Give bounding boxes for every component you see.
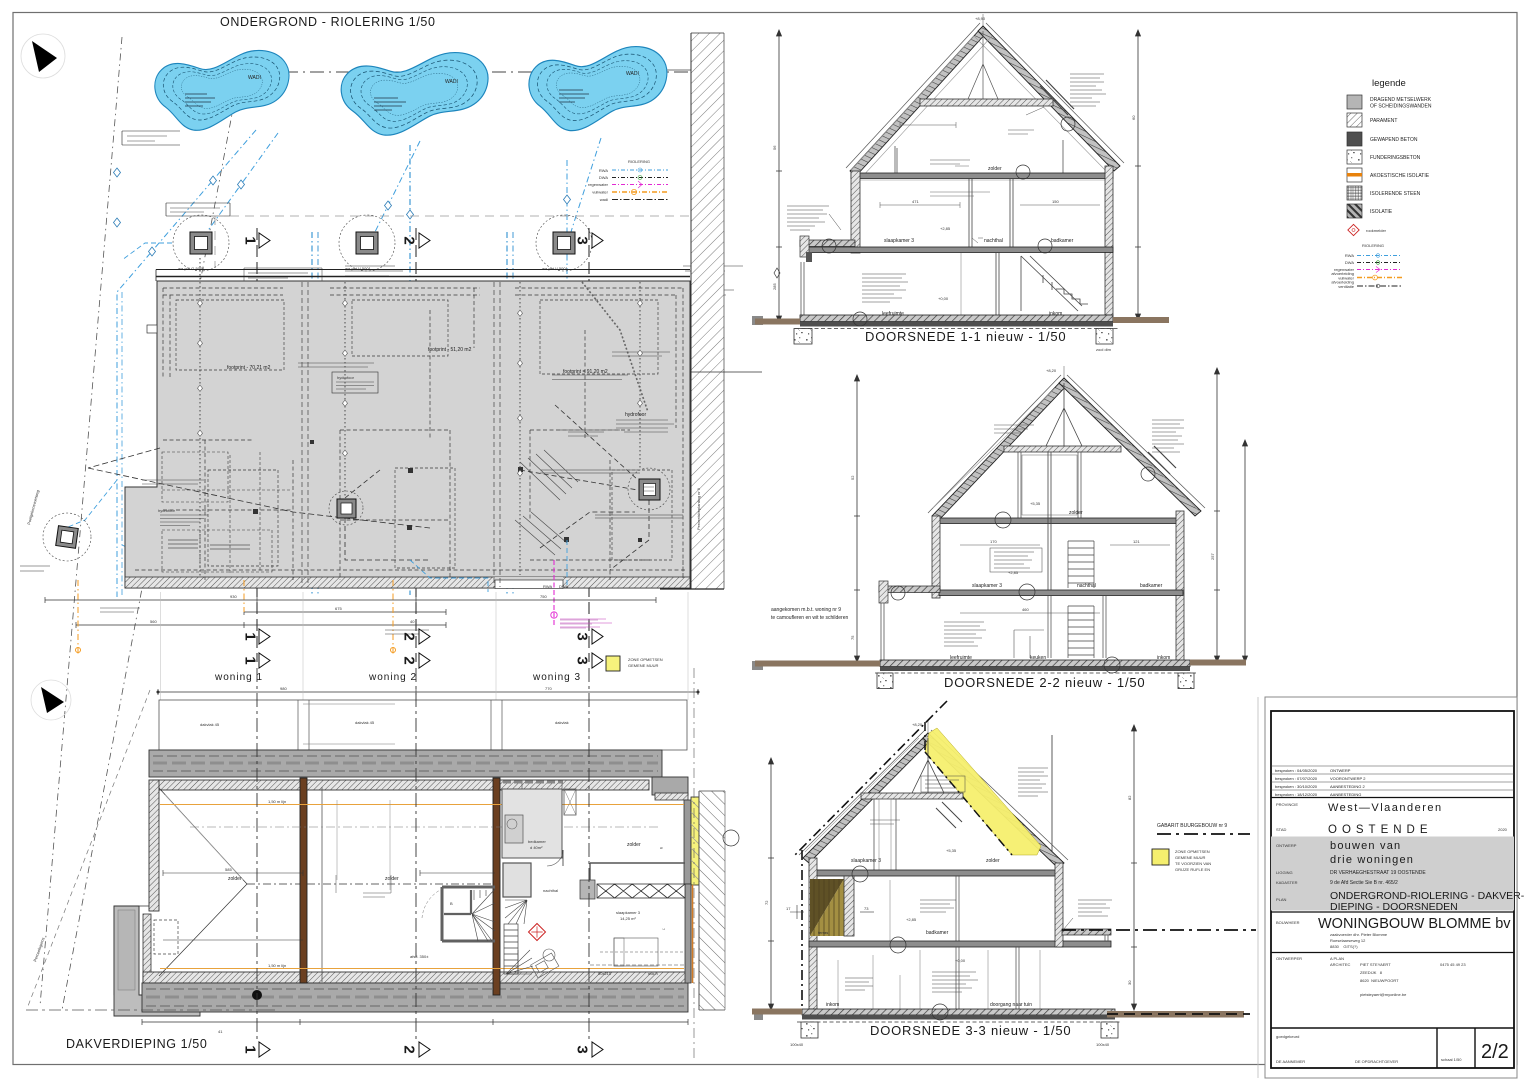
svg-text:B: B (450, 901, 453, 906)
svg-text:zolder: zolder (988, 166, 1002, 172)
svg-text:A PLAN: A PLAN (1330, 956, 1344, 961)
svg-text:ONTWERP: ONTWERP (1276, 843, 1297, 848)
svg-text:ventilatie: ventilatie (1338, 284, 1355, 289)
svg-text:72: 72 (764, 900, 769, 905)
svg-text:slaapkamer 3: slaapkamer 3 (884, 238, 914, 244)
svg-text:OOSTENDE: OOSTENDE (1328, 824, 1433, 836)
svg-text:bedkamer: bedkamer (528, 839, 546, 844)
svg-text:zolder: zolder (627, 842, 641, 848)
svg-text:1: 1 (242, 236, 259, 244)
svg-text:zolder: zolder (228, 876, 242, 882)
svg-text:Perceelsbeplanting nr 9: Perceelsbeplanting nr 9 (696, 487, 701, 530)
svg-text:FUNDERINGSBETON: FUNDERINGSBETON (1370, 155, 1421, 161)
svg-text:60: 60 (1131, 115, 1136, 120)
svg-text:hydrofoor: hydrofoor (337, 375, 355, 380)
svg-text:drie woningen: drie woningen (1330, 854, 1414, 866)
svg-text:2: 2 (401, 1045, 418, 1053)
svg-text:PIET STEYAERT: PIET STEYAERT (1360, 962, 1391, 967)
svg-text:AANBESTEDING 2: AANBESTEDING 2 (1330, 784, 1365, 789)
svg-text:wa-put V-5001: wa-put V-5001 (345, 266, 372, 271)
svg-text:hydrofoor: hydrofoor (625, 412, 646, 418)
svg-text:DAKVERDIEPING 1/50: DAKVERDIEPING 1/50 (66, 1037, 207, 1051)
svg-text:3: 3 (574, 656, 591, 664)
svg-text:+5,35: +5,35 (946, 848, 957, 853)
svg-text:dakvlak 45: dakvlak 45 (355, 720, 375, 725)
svg-text:STAD: STAD (1276, 827, 1286, 832)
svg-text:afstl. 350±: afstl. 350± (410, 954, 429, 959)
svg-text:+5,35: +5,35 (1030, 501, 1041, 506)
svg-text:40: 40 (410, 619, 415, 624)
svg-text:nok h: nok h (648, 971, 658, 976)
svg-text:TE VOORZIEN VAN: TE VOORZIEN VAN (1175, 861, 1211, 866)
svg-text:zool dim: zool dim (1096, 347, 1112, 352)
svg-text:GABARIT BUURGEBOUW nr 9: GABARIT BUURGEBOUW nr 9 (1157, 823, 1227, 829)
svg-text:legende: legende (1372, 78, 1406, 89)
svg-text:1,50 m lijn: 1,50 m lijn (268, 963, 286, 968)
svg-text:DR VERHAEGHESTRAAT 19 OOSTEN: DR VERHAEGHESTRAAT 19 OOSTENDE (1330, 870, 1426, 876)
svg-text:woning 1: woning 1 (214, 672, 263, 683)
svg-text:besproken : 07/07/2020: besproken : 07/07/2020 (1275, 776, 1318, 781)
svg-text:BOUWHEER: BOUWHEER (1276, 920, 1300, 925)
svg-text:+2,85: +2,85 (906, 917, 917, 922)
svg-text:8620 NIEUWPOORT: 8620 NIEUWPOORT (1360, 978, 1399, 983)
svg-text:GRIJZE RUFLE EN: GRIJZE RUFLE EN (1175, 867, 1210, 872)
svg-text:DE OPDRACHTGEVER: DE OPDRACHTGEVER (1355, 1059, 1398, 1064)
svg-text:ISOLERENDE STEEN: ISOLERENDE STEEN (1370, 191, 1421, 197)
svg-text:RWA: RWA (599, 168, 608, 173)
svg-text:inkom: inkom (826, 1002, 839, 1008)
svg-text:zolder: zolder (1069, 510, 1083, 516)
svg-text:VOORONTWERP 2: VOORONTWERP 2 (1330, 776, 1366, 781)
svg-text:257: 257 (1210, 553, 1215, 560)
svg-text:ARCHITEC: ARCHITEC (1330, 962, 1351, 967)
svg-text:82: 82 (1127, 795, 1132, 800)
svg-text:slaapkamer 3: slaapkamer 3 (851, 858, 881, 864)
svg-text:dakvlak 45: dakvlak 45 (200, 722, 220, 727)
svg-text:2: 2 (401, 656, 418, 664)
svg-text:wa-put V-5001: wa-put V-5001 (542, 266, 569, 271)
svg-text:zolder: zolder (986, 858, 1000, 864)
svg-text:ZEEDIJK 8: ZEEDIJK 8 (1360, 970, 1383, 975)
svg-text:DWA: DWA (1345, 260, 1355, 265)
svg-text:9 de Afd Sectie Sie B nr. 4: 9 de Afd Sectie Sie B nr. 465/2 (1330, 880, 1398, 886)
svg-text:bouwen van: bouwen van (1330, 840, 1401, 852)
svg-text:750: 750 (540, 594, 547, 599)
svg-text:woning 3: woning 3 (532, 672, 581, 683)
svg-text:ONTWERPER: ONTWERPER (1276, 956, 1302, 961)
svg-text:DRAGEND METSELWERK: DRAGEND METSELWERK (1370, 97, 1432, 103)
svg-text:121: 121 (1133, 539, 1140, 544)
svg-text:460: 460 (1022, 607, 1029, 612)
svg-text:nachthal: nachthal (543, 888, 558, 893)
svg-text:woning 2: woning 2 (368, 672, 417, 683)
svg-text:wa-put G-5001: wa-put G-5001 (178, 266, 205, 271)
svg-text:RWA: RWA (543, 584, 552, 589)
svg-text:90x210: 90x210 (598, 971, 612, 976)
svg-text:3: 3 (574, 1045, 591, 1053)
svg-text:285: 285 (772, 283, 777, 290)
svg-text:KADASTER: KADASTER (1276, 880, 1298, 885)
svg-text:ONDERGROND - RIOLERING 1/50: ONDERGROND - RIOLERING 1/50 (220, 15, 436, 29)
svg-text:1: 1 (242, 656, 259, 664)
svg-text:+0,00: +0,00 (955, 958, 966, 963)
svg-text:2020: 2020 (1498, 827, 1508, 832)
svg-text:ZONE OPMETSEN: ZONE OPMETSEN (1175, 849, 1210, 854)
svg-text:0475 45 49 23: 0475 45 49 23 (1440, 962, 1466, 967)
svg-text:+8,20: +8,20 (1046, 368, 1057, 373)
svg-text:Roeselaarseweg 12: Roeselaarseweg 12 (1330, 938, 1366, 943)
svg-text:badkamer: badkamer (1140, 583, 1163, 589)
svg-text:2/2: 2/2 (1481, 1041, 1509, 1063)
svg-text:PLAN: PLAN (1276, 897, 1287, 902)
svg-text:te camoufleren en wit te schil: te camoufleren en wit te schilderen (771, 615, 848, 621)
svg-text:3: 3 (574, 632, 591, 640)
svg-text:770: 770 (545, 686, 552, 691)
svg-text:DOORSNEDE 2-2 nieuw - 1/50: DOORSNEDE 2-2 nieuw - 1/50 (944, 675, 1145, 690)
svg-text:100x40: 100x40 (1096, 1042, 1110, 1047)
svg-text:3: 3 (574, 236, 591, 244)
svg-text:nachthal: nachthal (1077, 583, 1096, 589)
svg-text:14,25 m²: 14,25 m² (620, 916, 636, 921)
svg-text:1,50 m lijn: 1,50 m lijn (268, 799, 286, 804)
svg-text:585: 585 (225, 867, 232, 872)
svg-text:170: 170 (990, 539, 997, 544)
svg-text:30: 30 (1127, 980, 1132, 985)
svg-text:PARAMENT: PARAMENT (1370, 118, 1397, 124)
svg-text:dakvlak: dakvlak (555, 720, 569, 725)
svg-text:footprint - 70,21 m2: footprint - 70,21 m2 (227, 365, 271, 371)
svg-text:West—Vlaanderen: West—Vlaanderen (1328, 802, 1443, 814)
svg-text:DOORSNEDE 1-1 nieuw - 1/50: DOORSNEDE 1-1 nieuw - 1/50 (865, 329, 1066, 344)
svg-text:WADI: WADI (445, 79, 458, 85)
svg-text:8830 GITS(?): 8830 GITS(?) (1330, 944, 1358, 949)
svg-text:GEMENE MUUR: GEMENE MUUR (628, 663, 659, 668)
svg-text:980: 980 (280, 686, 287, 691)
svg-text:terras: terras (818, 930, 828, 935)
svg-text:41: 41 (218, 1029, 223, 1034)
svg-text:DIEPING - DOORSNEDEN: DIEPING - DOORSNEDEN (1330, 901, 1458, 913)
svg-text:LIGGING: LIGGING (1276, 870, 1293, 875)
svg-text:+2,85: +2,85 (1008, 570, 1019, 575)
svg-text:slaapkamer 3: slaapkamer 3 (972, 583, 1002, 589)
svg-text:RIOLERING: RIOLERING (1362, 243, 1384, 248)
svg-text:WADI: WADI (626, 71, 639, 77)
svg-text:100x40: 100x40 (790, 1042, 804, 1047)
svg-text:1: 1 (242, 1045, 259, 1053)
svg-text:1: 1 (242, 632, 259, 640)
svg-text:ISOLATIE: ISOLATIE (1370, 209, 1393, 215)
svg-text:WONINGBOUW BLOMME bv: WONINGBOUW BLOMME bv (1318, 916, 1511, 932)
svg-text:RIOLERING: RIOLERING (628, 159, 650, 164)
svg-text:zaakvoerder dhr. Pieter Blom: zaakvoerder dhr. Pieter Blomme (1330, 932, 1388, 937)
svg-text:+8,90: +8,90 (975, 16, 986, 21)
svg-text:52: 52 (850, 475, 855, 480)
svg-text:regenwater: regenwater (588, 182, 609, 187)
svg-text:besproken : 04/05/2020: besproken : 04/05/2020 (1275, 768, 1318, 773)
svg-text:75: 75 (850, 635, 855, 640)
svg-text:schaal 1/50: schaal 1/50 (1441, 1057, 1462, 1062)
svg-text:badkamer: badkamer (926, 930, 949, 936)
svg-text:besproken : 30/10/2020: besproken : 30/10/2020 (1275, 784, 1318, 789)
svg-text:doorgang naar tuin: doorgang naar tuin (990, 1002, 1032, 1008)
svg-text:GEMENE MUUR: GEMENE MUUR (1175, 855, 1206, 860)
svg-text:DOORSNEDE 3-3 nieuw - 1/50: DOORSNEDE 3-3 nieuw - 1/50 (870, 1023, 1071, 1038)
svg-text:nachthal: nachthal (984, 238, 1003, 244)
svg-text:+8,20: +8,20 (912, 722, 923, 727)
svg-text:17: 17 (786, 906, 791, 911)
svg-text:hydrofoor: hydrofoor (158, 508, 176, 513)
svg-text:footprint = 91,20 m2: footprint = 91,20 m2 (563, 369, 608, 375)
svg-text:+0,00: +0,00 (938, 296, 949, 301)
svg-text:d 40m²: d 40m² (530, 845, 543, 850)
svg-text:footprint - 51,20 m2: footprint - 51,20 m2 (428, 347, 472, 353)
svg-text:+2,85: +2,85 (940, 226, 951, 231)
svg-text:rookmelder: rookmelder (1366, 228, 1387, 233)
svg-text:slaapkamer 3: slaapkamer 3 (616, 910, 641, 915)
svg-text:pietsteyaert@myonline.be: pietsteyaert@myonline.be (1360, 992, 1407, 997)
svg-text:aangekomen m.b.t. woning nr 9: aangekomen m.b.t. woning nr 9 (771, 607, 841, 613)
svg-text:73: 73 (864, 906, 869, 911)
svg-text:AKOESTISCHE ISOLATIE: AKOESTISCHE ISOLATIE (1370, 173, 1430, 179)
svg-text:2: 2 (401, 236, 418, 244)
svg-text:RWA: RWA (1345, 253, 1354, 258)
svg-text:DWA: DWA (599, 175, 609, 180)
svg-text:zolder: zolder (385, 876, 399, 882)
svg-text:DE AANNEMER: DE AANNEMER (1276, 1059, 1305, 1064)
svg-text:vuilwater: vuilwater (592, 190, 608, 195)
svg-text:WADI: WADI (248, 75, 261, 81)
svg-text:GEWAPEND BETON: GEWAPEND BETON (1370, 137, 1418, 143)
svg-text:56: 56 (772, 145, 777, 150)
svg-text:560: 560 (150, 619, 157, 624)
svg-text:2: 2 (401, 632, 418, 640)
svg-text:goedgekeurd: goedgekeurd (1276, 1034, 1299, 1039)
svg-text:wadi: wadi (600, 197, 608, 202)
svg-text:AANBESTEDING: AANBESTEDING (1330, 792, 1361, 797)
svg-text:besproken : 18/12/2020: besproken : 18/12/2020 (1275, 792, 1318, 797)
svg-text:471: 471 (912, 199, 919, 204)
svg-text:ONTWERP: ONTWERP (1330, 768, 1351, 773)
svg-text:ZONE OPMETSEN: ZONE OPMETSEN (628, 657, 663, 662)
svg-text:PROVINCIE: PROVINCIE (1276, 802, 1298, 807)
svg-text:675: 675 (335, 606, 342, 611)
svg-text:930: 930 (230, 594, 237, 599)
svg-text:badkamer: badkamer (1051, 238, 1074, 244)
svg-text:OF SCHEIDINGSWANDEN: OF SCHEIDINGSWANDEN (1370, 104, 1432, 110)
svg-text:150: 150 (1052, 199, 1059, 204)
